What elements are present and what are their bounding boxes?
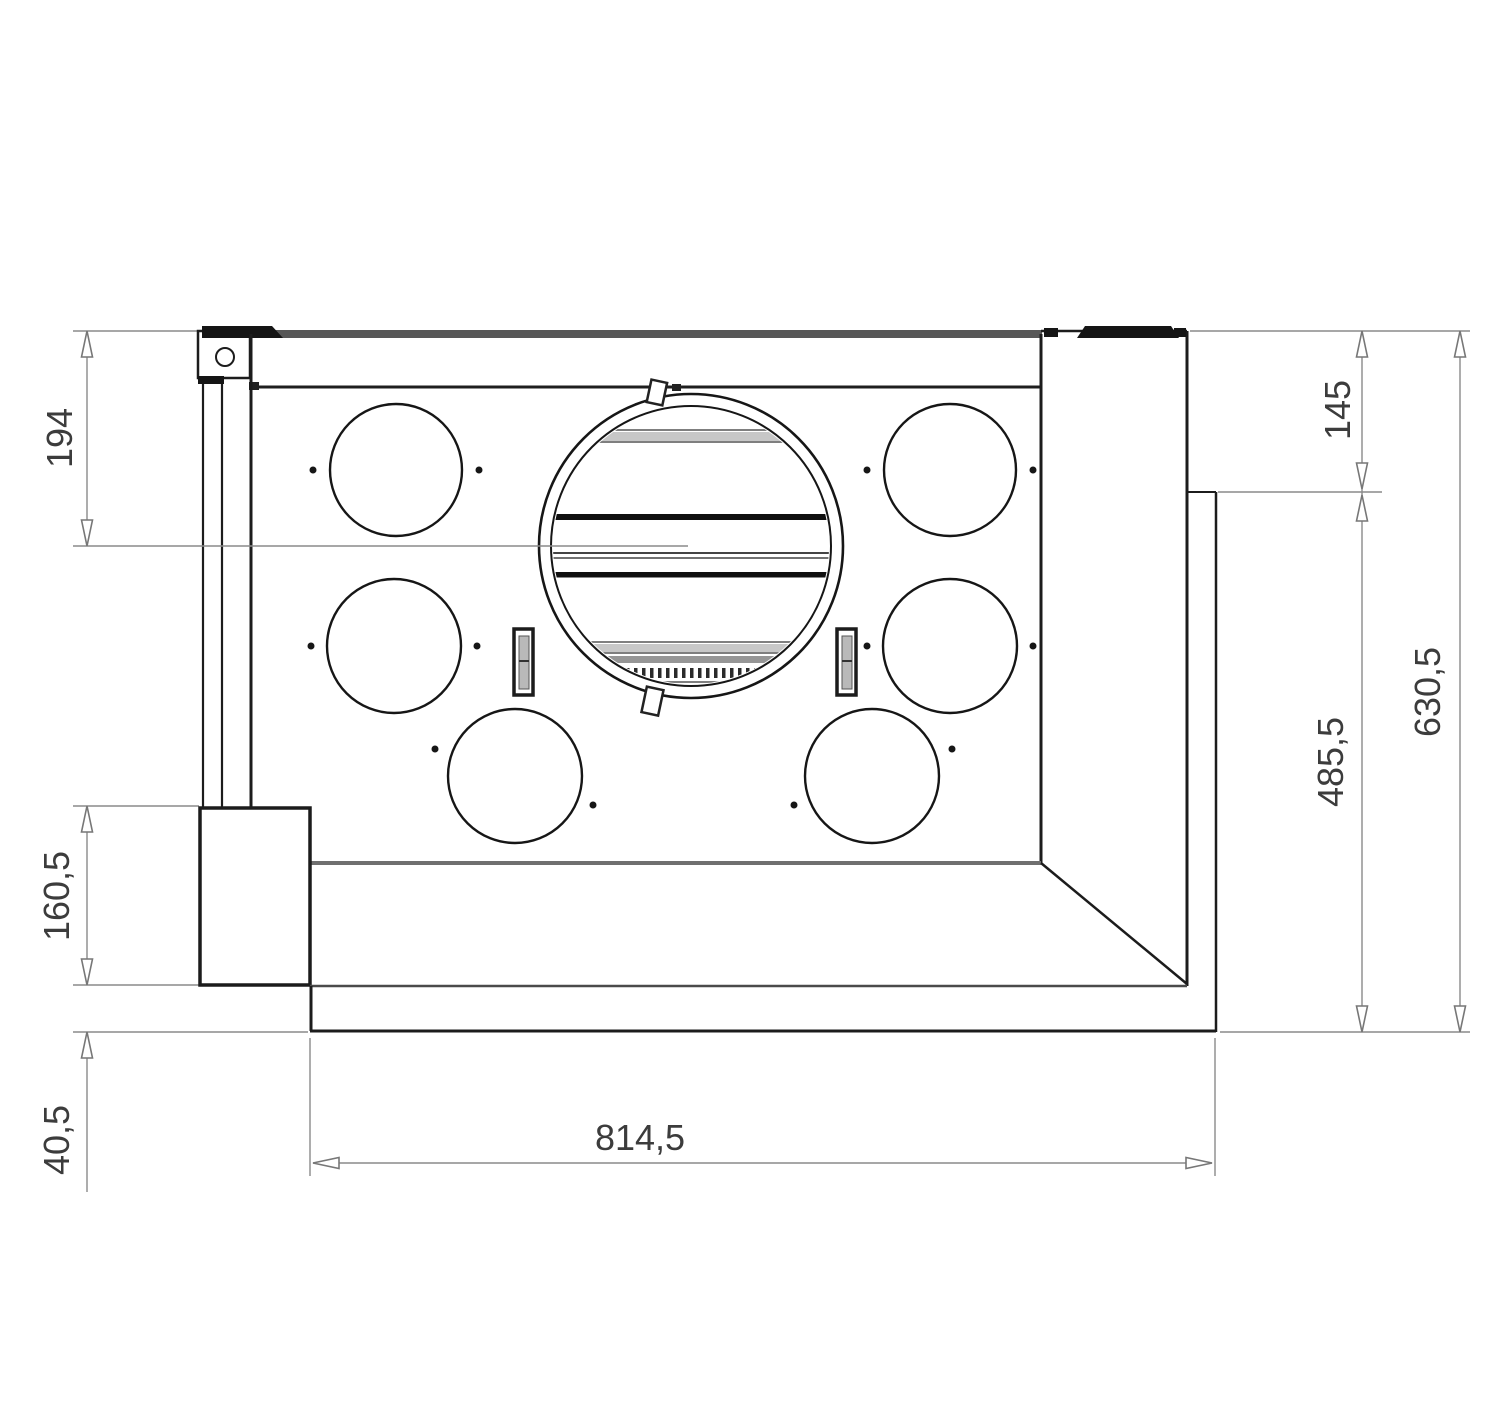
dim-label-814-5: 814,5: [595, 1117, 685, 1159]
bracket-hole: [216, 348, 234, 366]
drawing-linework: [0, 0, 1500, 1427]
side-box: [200, 808, 310, 985]
corner-bevel: [1041, 863, 1187, 984]
dim-label-194: 194: [39, 408, 81, 468]
fan-opening: [539, 380, 843, 716]
cutout-bottom-left: [448, 709, 582, 843]
cutout-mid-left: [327, 579, 461, 713]
fan-tab-top: [647, 380, 667, 406]
dim-label-40-5: 40,5: [36, 1105, 78, 1175]
cutout-top-right: [884, 404, 1016, 536]
dim-label-160-5: 160,5: [36, 851, 78, 941]
dim-label-485-5: 485,5: [1310, 717, 1352, 807]
top-right-black-bar: [1077, 326, 1179, 338]
hood-dimension-drawing: 194 160,5 40,5 145 485,5 630,5 814,5: [0, 0, 1500, 1427]
top-edge: [197, 330, 1042, 338]
top-left-black-bar: [202, 326, 283, 338]
cutout-bottom-right: [805, 709, 939, 843]
cutout-mid-right: [883, 579, 1017, 713]
dim-label-630-5: 630,5: [1407, 647, 1449, 737]
fan-tab-bottom: [641, 687, 663, 716]
dim-label-145: 145: [1317, 380, 1359, 440]
cutout-top-left: [330, 404, 462, 536]
